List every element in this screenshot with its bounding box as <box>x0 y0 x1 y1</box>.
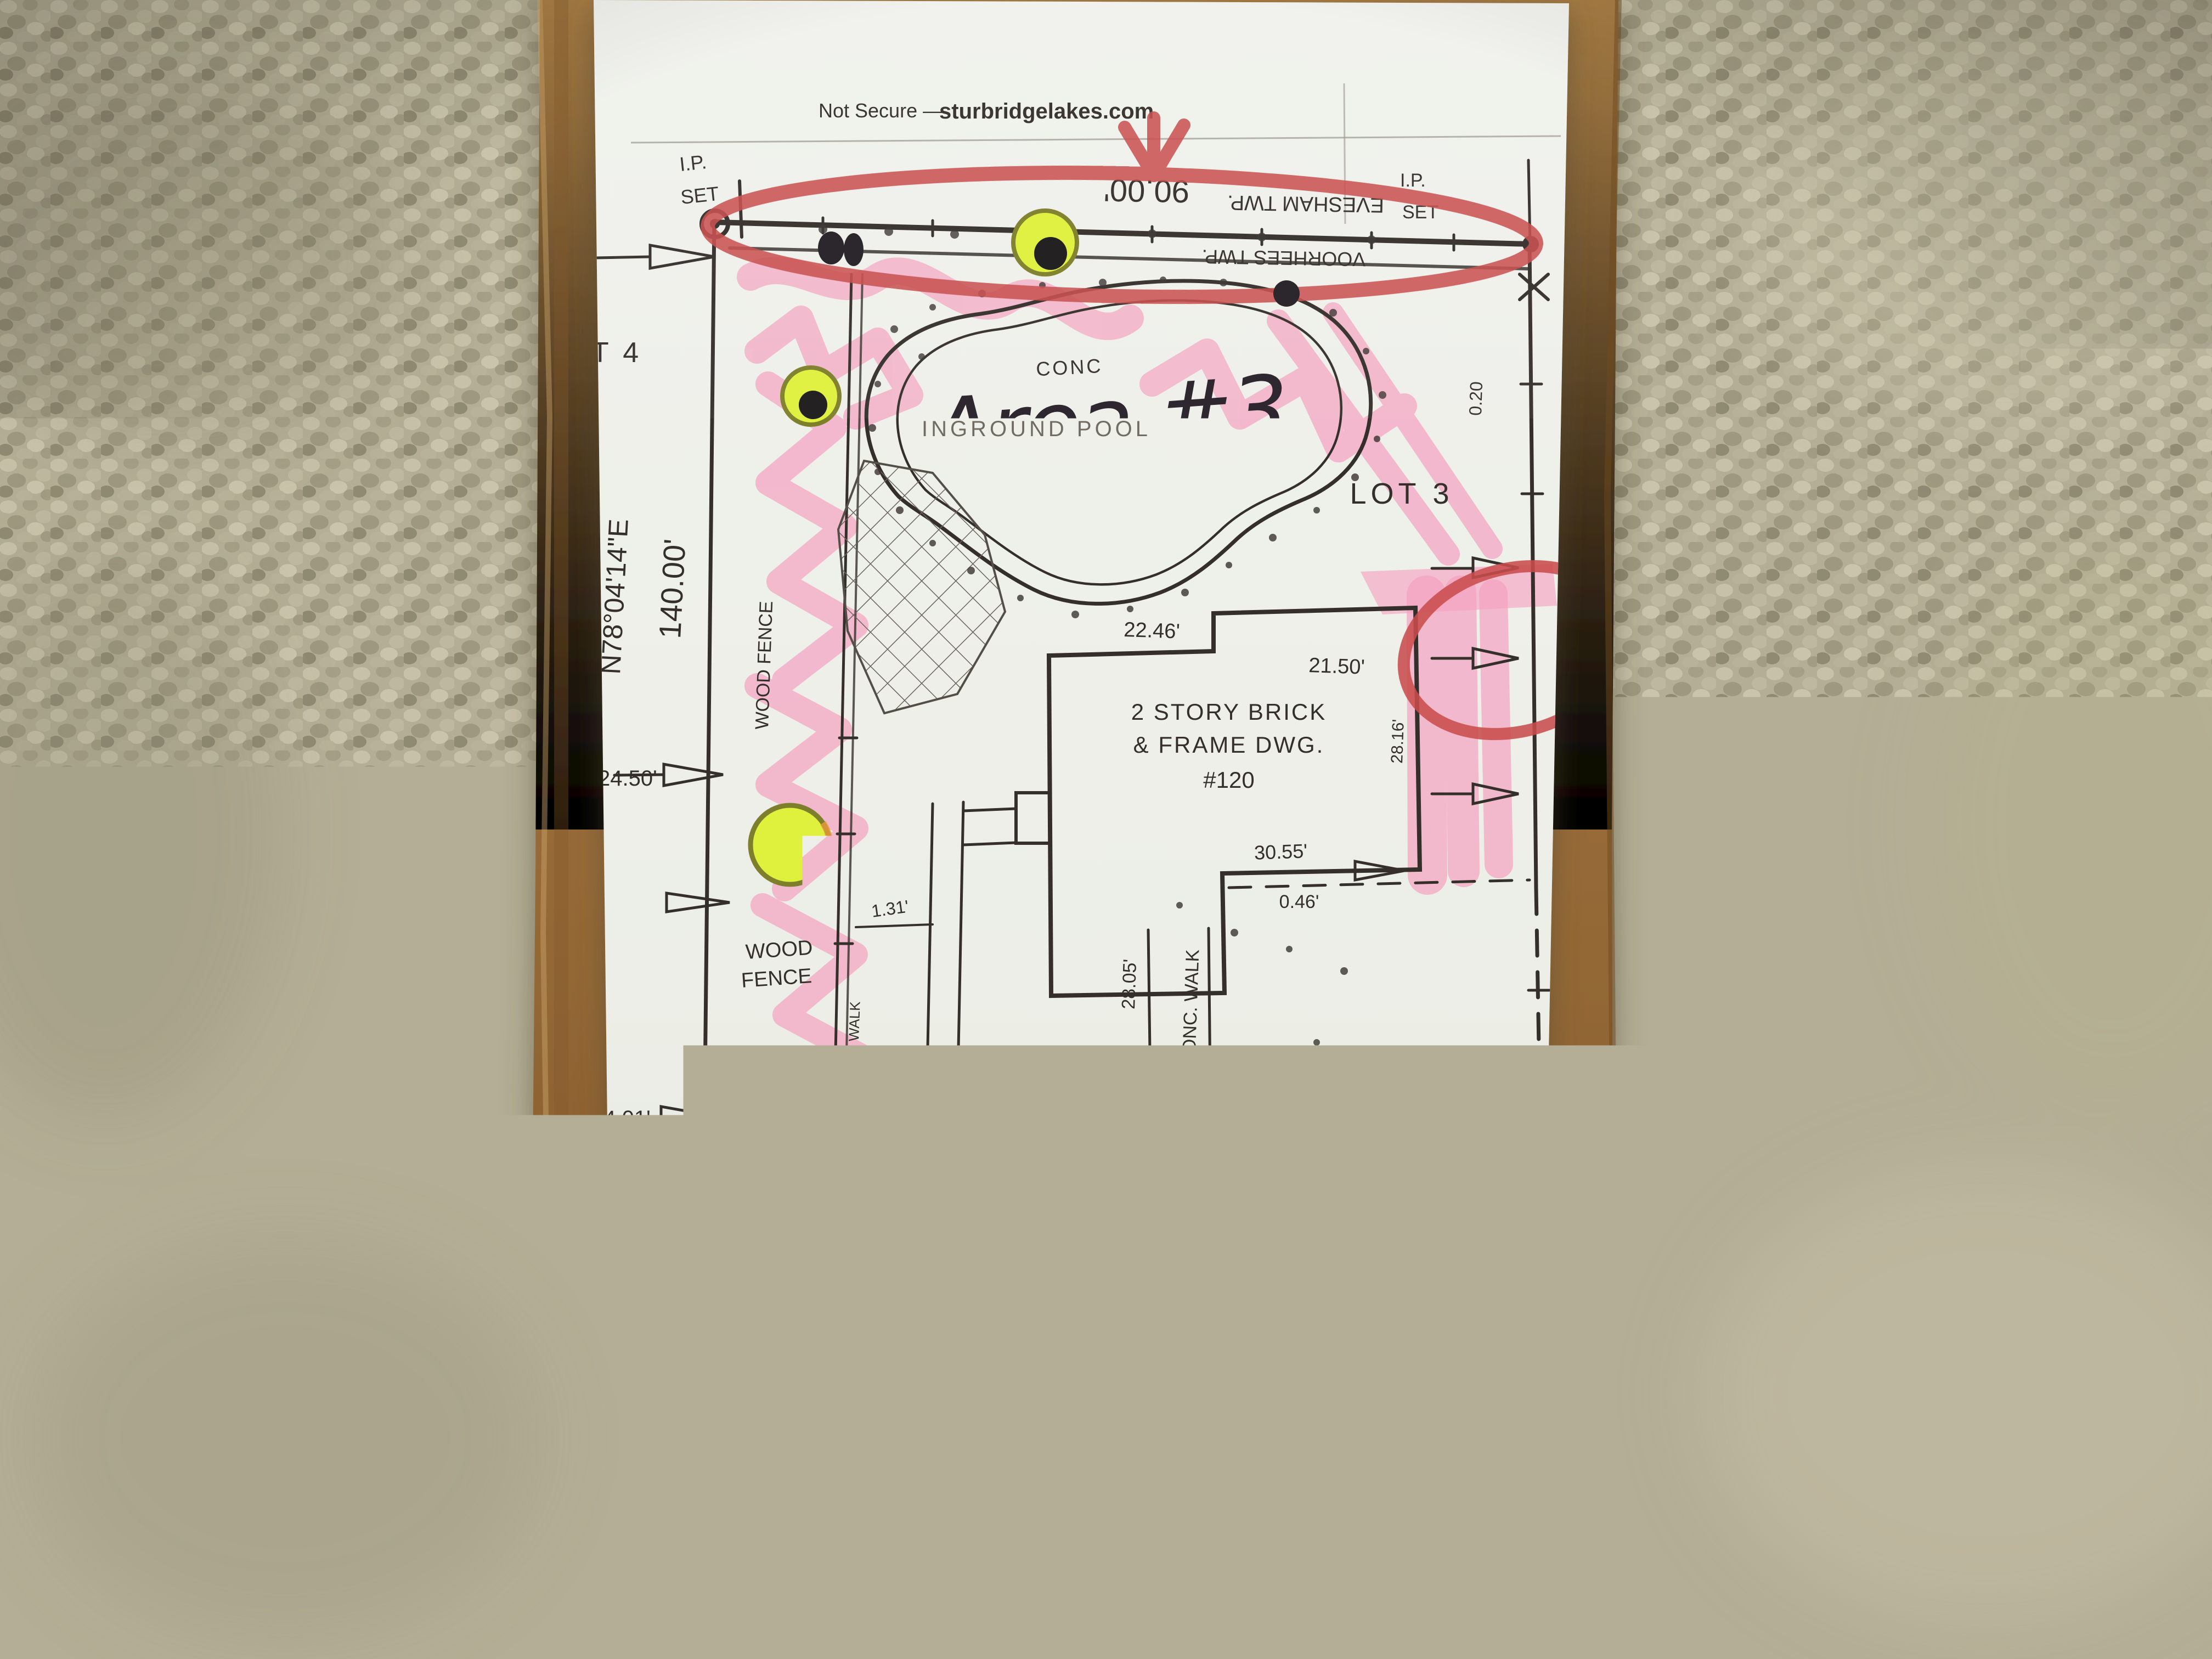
phot-vignette <box>0 0 2212 1659</box>
photo-of-survey-on-floor: Not Secure — sturbridgelakes.com <box>0 0 2212 1659</box>
